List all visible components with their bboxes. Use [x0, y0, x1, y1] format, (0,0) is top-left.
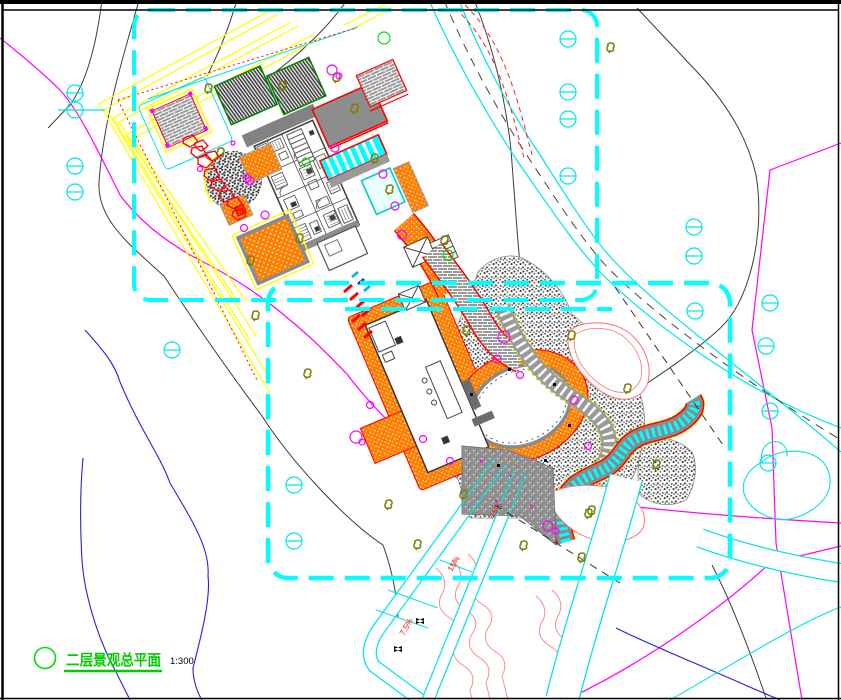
svg-text:1:300: 1:300 — [170, 656, 194, 667]
svg-text:二层景观总平面: 二层景观总平面 — [66, 651, 161, 669]
